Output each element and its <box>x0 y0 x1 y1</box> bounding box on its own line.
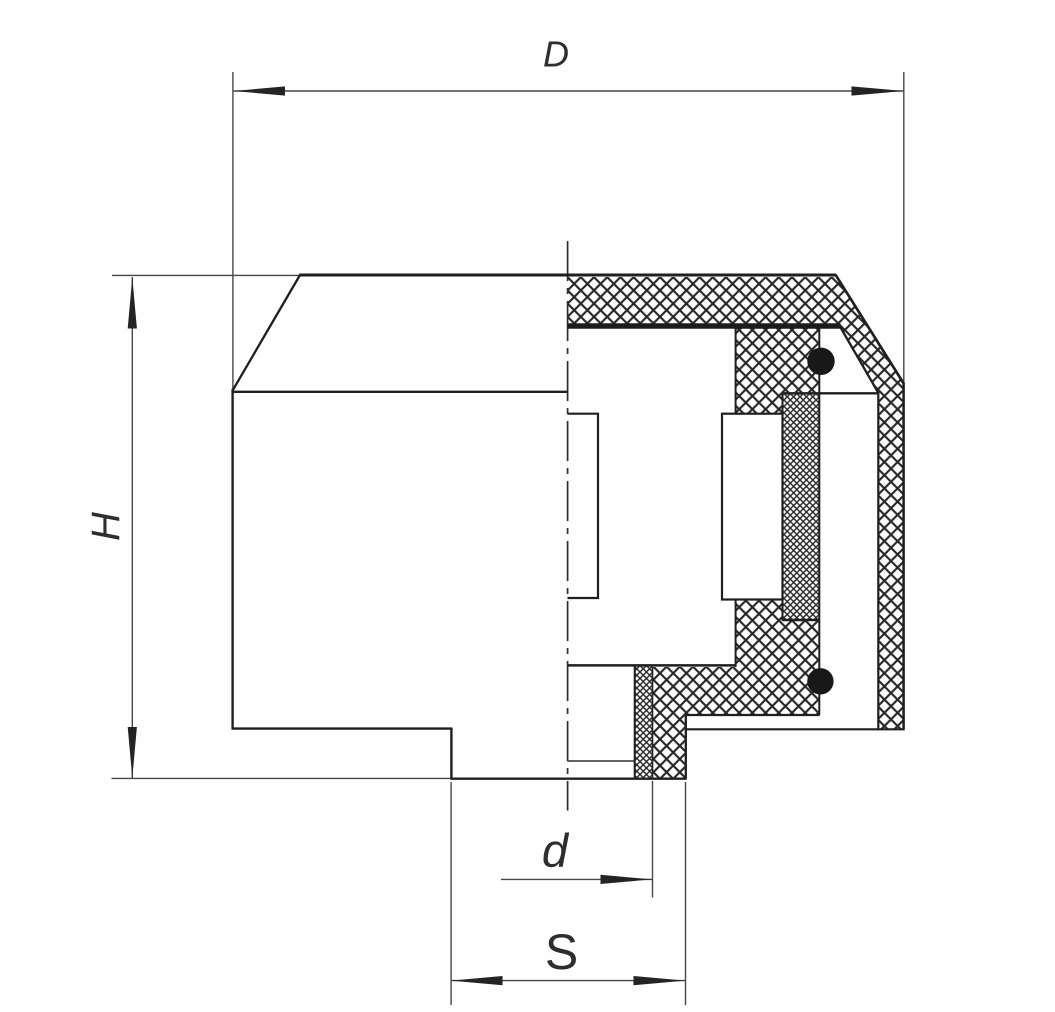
svg-text:D: D <box>543 34 569 75</box>
svg-text:S: S <box>545 924 578 980</box>
svg-text:d: d <box>542 824 570 877</box>
svg-text:H: H <box>84 512 128 541</box>
